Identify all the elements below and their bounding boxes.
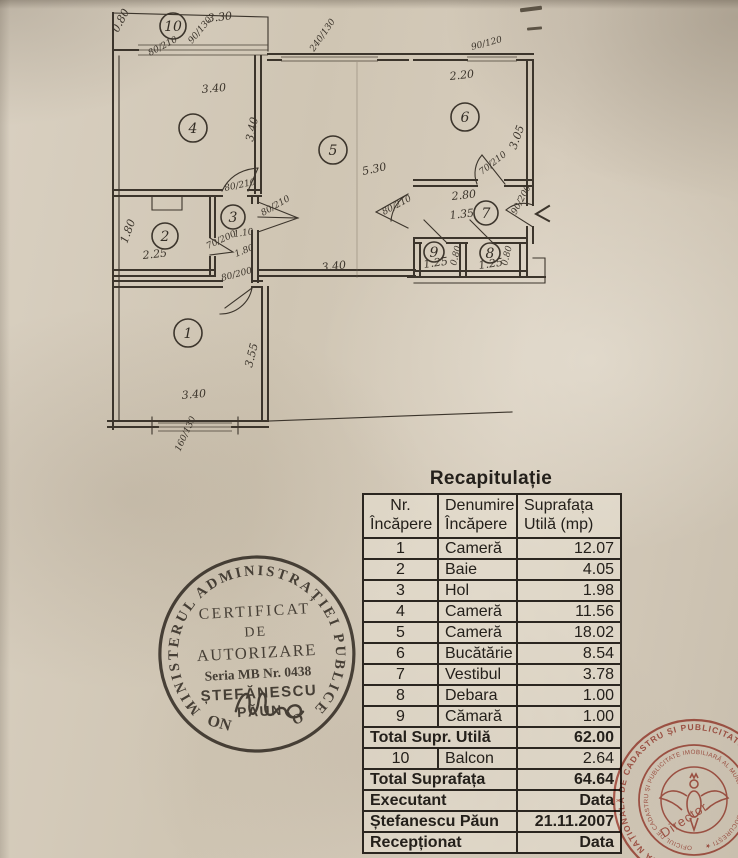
table-row: 6Bucătărie8.54 [363, 643, 621, 664]
room-number-4: 4 [179, 114, 207, 142]
table-row: 8Debara1.00 [363, 685, 621, 706]
dim-label: 1.80 [118, 218, 139, 245]
authorization-stamp: MINISTERUL ADMINISTRAȚIEI PUBLICE ON O C… [150, 545, 366, 767]
room-label: 2 [160, 229, 170, 245]
red-stamp-director-text: Director [657, 799, 710, 841]
total-util-row: Total Supr. Utilă62.00 [363, 727, 621, 748]
executant-name-row: Ștefanescu Păun21.11.2007 [363, 811, 621, 832]
dim-label: 80/210 [260, 194, 293, 219]
receptionat-row: RecepționatData [363, 832, 621, 853]
header-nr: Nr.Încăpere [363, 494, 438, 538]
room-label: 10 [164, 19, 182, 35]
stamp-bottom-text2: O [290, 711, 306, 729]
dim-label: 3.55 [242, 342, 261, 369]
cell-name: Cămară [438, 706, 517, 727]
cell-name: Vestibul [438, 664, 517, 685]
room-number-6: 6 [451, 103, 479, 131]
room-label: 5 [329, 143, 338, 159]
header-denumire: DenumireÎncăpere [438, 494, 517, 538]
cell-area: 11.56 [517, 601, 621, 622]
cell-area: 1.00 [517, 685, 621, 706]
table-row: 3Hol1.98 [363, 580, 621, 601]
room-label: 6 [461, 110, 470, 126]
cell-name: Bucătărie [438, 643, 517, 664]
total-row: Total Suprafața64.64 [363, 769, 621, 790]
room-label: 7 [482, 206, 491, 222]
balcony-row: 10Balcon2.64 [363, 748, 621, 769]
table-row: 5Cameră18.02 [363, 622, 621, 643]
dim-label: 5.30 [361, 160, 388, 178]
table-row: 4Cameră11.56 [363, 601, 621, 622]
stamp-line-seria: Seria MB Nr. 0438 [204, 663, 312, 684]
cell-name: Cameră [438, 622, 517, 643]
dim-label: 0.80 [109, 7, 132, 35]
recap-title: Recapitulație [362, 468, 620, 490]
cell-area: 4.05 [517, 559, 621, 580]
dim-label: 2.20 [448, 67, 475, 83]
room-number-1: 1 [174, 319, 202, 347]
cell-area: 8.54 [517, 643, 621, 664]
dim-label: 2.25 [141, 246, 168, 262]
cell-area: 1.98 [517, 580, 621, 601]
dim-label: 80/210 [381, 194, 414, 218]
dim-label: 3.40 [321, 258, 347, 273]
table-row: 7Vestibul3.78 [363, 664, 621, 685]
cell-nr: 6 [363, 643, 438, 664]
cell-nr: 2 [363, 559, 438, 580]
room-number-2: 2 [152, 223, 178, 249]
cell-name: Cameră [438, 601, 517, 622]
dim-label: 3.40 [181, 387, 207, 402]
cell-name: Baie [438, 559, 517, 580]
cell-area: 18.02 [517, 622, 621, 643]
dim-label: 90/120 [470, 35, 503, 53]
dim-label: 80/210 [224, 178, 257, 194]
dim-label: 3.40 [243, 116, 261, 143]
dim-label: 1.25 [478, 256, 504, 272]
recap-header-row: Nr.Încăpere DenumireÎncăpere SuprafațaUt… [363, 494, 621, 538]
cell-nr: 8 [363, 685, 438, 706]
dim-label: 80/200 [220, 266, 253, 284]
cell-name: Hol [438, 580, 517, 601]
room-label: 4 [188, 121, 198, 137]
executant-label: Executant [363, 790, 517, 811]
cell-nr: 9 [363, 706, 438, 727]
cadastre-stamp: AGENȚIA NAȚIONALĂ DE CADASTRU ȘI PUBLICI… [592, 712, 738, 858]
stamp-line-de: DE [244, 624, 267, 640]
room-number-7: 7 [474, 201, 498, 225]
room-label: 1 [184, 326, 193, 342]
dim-label: 1.35 [449, 206, 475, 221]
cell-nr: 3 [363, 580, 438, 601]
cell-nr: 4 [363, 601, 438, 622]
cell-area: 12.07 [517, 538, 621, 559]
room-label: 3 [229, 210, 238, 226]
dim-label: 3.40 [201, 81, 227, 96]
stamp-line-certificat: CERTIFICAT [198, 600, 311, 623]
floor-plan: 1 2 3 4 5 6 7 8 9 10 0.80 3.30 80/210 90… [0, 0, 738, 470]
cell-nr: 5 [363, 622, 438, 643]
stamp-line-autorizare: AUTORIZARE [196, 640, 317, 665]
recap-table: Nr.Încăpere DenumireÎncăpere SuprafațaUt… [362, 493, 622, 854]
total-util-label: Total Supr. Utilă [363, 727, 517, 748]
executant-row: ExecutantData [363, 790, 621, 811]
floor-plan-walls [108, 13, 549, 434]
dim-label: 1.25 [423, 255, 449, 271]
receptionat-label: Recepționat [363, 832, 517, 853]
dim-label: 90/200 [510, 184, 534, 217]
table-row: 2Baie4.05 [363, 559, 621, 580]
cell-name: Balcon [438, 748, 517, 769]
dimension-labels: 0.80 3.30 80/210 90/130 3.40 3.40 240/13… [109, 7, 533, 454]
cell-name: Debara [438, 685, 517, 706]
executant-name: Ștefanescu Păun [363, 811, 517, 832]
dim-label: 0.80 [449, 245, 464, 267]
header-suprafata: SuprafațaUtilă (mp) [517, 494, 621, 538]
cell-nr: 7 [363, 664, 438, 685]
scanned-cadastral-document: 1 2 3 4 5 6 7 8 9 10 0.80 3.30 80/210 90… [0, 0, 738, 858]
dim-label: 240/130 [308, 17, 338, 54]
cell-name: Cameră [438, 538, 517, 559]
dim-label: 90/130 [187, 15, 215, 46]
stamp-bottom-text: ON [205, 712, 233, 735]
dim-label: 3.05 [507, 124, 528, 151]
dim-label: 70/210 [478, 150, 509, 178]
recap-section: Recapitulație Nr.Încăpere DenumireÎncăpe… [362, 468, 620, 854]
total-label: Total Suprafața [363, 769, 517, 790]
table-row: 1Cameră12.07 [363, 538, 621, 559]
room-number-5: 5 [319, 136, 347, 164]
dim-label: 2.80 [450, 187, 477, 203]
cell-nr: 10 [363, 748, 438, 769]
table-row: 9Cămară1.00 [363, 706, 621, 727]
cell-area: 3.78 [517, 664, 621, 685]
cell-nr: 1 [363, 538, 438, 559]
room-number-3: 3 [221, 205, 245, 229]
entry-arrow-icon [536, 206, 549, 221]
